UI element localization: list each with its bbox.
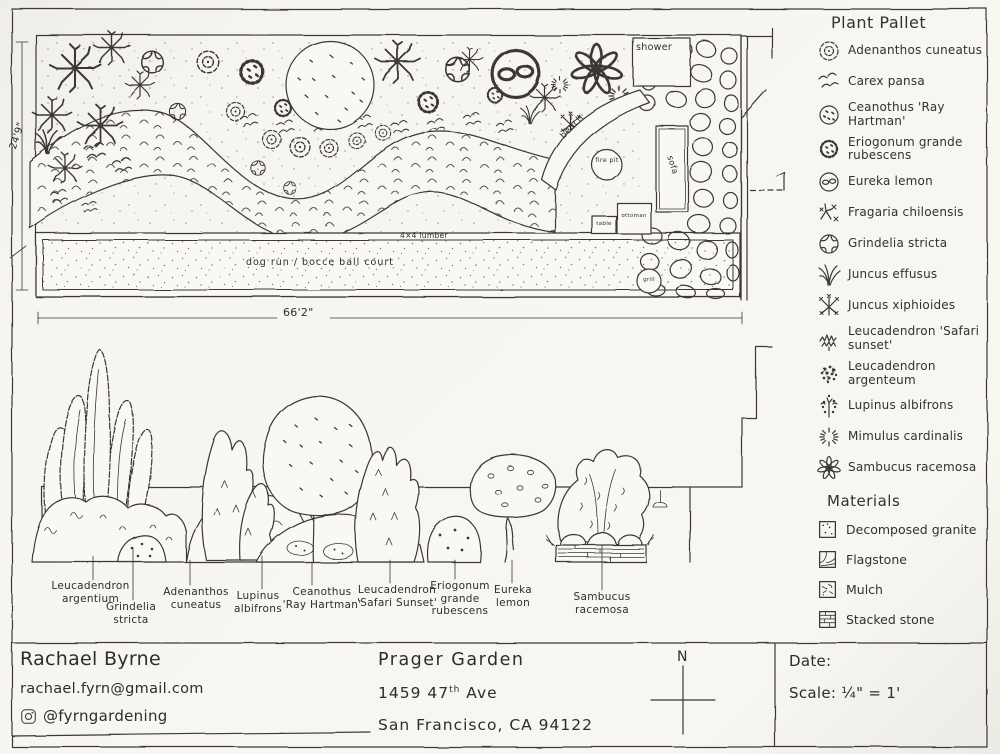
pinwheel-circle-icon bbox=[817, 232, 841, 256]
date-field: Date: bbox=[789, 652, 831, 670]
project-address: 1459 47th Ave bbox=[378, 684, 498, 703]
instagram-text: @fyrngardening bbox=[43, 707, 168, 725]
legend-item-label: Mimulus cardinalis bbox=[848, 430, 963, 444]
material-item: Decomposed granite bbox=[817, 516, 995, 542]
wavy-grass-icon bbox=[817, 70, 841, 94]
legend-item: Adenanthos cuneatus bbox=[817, 39, 995, 63]
label-fire-pit: fire pit bbox=[592, 157, 622, 165]
instagram-handle: @fyrngardening bbox=[20, 707, 168, 725]
dense-cluster-icon bbox=[817, 362, 841, 386]
grass-fan-icon bbox=[817, 263, 841, 287]
plan-view bbox=[10, 28, 784, 324]
legend-title: Plant Pallet bbox=[831, 13, 995, 32]
project-city: San Francisco, CA 94122 bbox=[378, 716, 593, 735]
legend-item-label: Eureka lemon bbox=[848, 175, 933, 189]
design-sheet: shower bench fire pit sofa table ottoman… bbox=[0, 0, 1000, 754]
designer-email: rachael.fyrn@gmail.com bbox=[20, 681, 204, 698]
mulch-square-icon bbox=[817, 579, 838, 600]
legend-item-label: Fragaria chiloensis bbox=[848, 206, 964, 220]
north-arrow bbox=[651, 666, 715, 734]
label-grill: grill bbox=[636, 277, 662, 284]
legend-item: Fragaria chiloensis bbox=[817, 201, 995, 225]
legend-item: Juncus effusus bbox=[817, 263, 995, 287]
fire-pit-outline bbox=[592, 150, 622, 180]
elevation-plants bbox=[32, 350, 654, 563]
legend-item-label: Ceanothus 'Ray Hartman' bbox=[848, 101, 995, 129]
plant-pallet-legend: Plant Pallet Adenanthos cuneatus Carex p… bbox=[817, 13, 995, 636]
material-label: Stacked stone bbox=[846, 612, 934, 627]
legend-item: Juncus xiphioides bbox=[817, 294, 995, 318]
legend-item-label: Carex pansa bbox=[848, 75, 925, 89]
material-label: Flagstone bbox=[846, 552, 907, 567]
scalloped-circle-icon bbox=[817, 39, 841, 63]
dotted-circle-icon bbox=[817, 103, 841, 127]
legend-item: Eureka lemon bbox=[817, 170, 995, 194]
legend-item-label: Leucadendron 'Safari sunset' bbox=[848, 325, 995, 353]
legend-item-label: Leucadendron argenteum bbox=[848, 360, 995, 388]
elevation-label: Eureka lemon bbox=[487, 584, 539, 609]
fruit-circle-icon bbox=[817, 170, 841, 194]
elevation-label: Eriogonum grande rubescens bbox=[426, 580, 494, 618]
legend-item: Lupinus albifrons bbox=[817, 394, 995, 418]
dimension-width: 66'2" bbox=[283, 306, 314, 319]
label-shower: shower bbox=[636, 42, 690, 53]
radiating-dashes-icon bbox=[817, 425, 841, 449]
north-label: N bbox=[677, 649, 688, 666]
flagstone-square-icon bbox=[817, 549, 838, 570]
starburst-x-icon bbox=[817, 294, 841, 318]
materials-title: Materials bbox=[827, 492, 995, 510]
elevation-label: Sambucus racemosa bbox=[562, 591, 642, 616]
material-item: Mulch bbox=[817, 576, 995, 602]
material-item: Stacked stone bbox=[817, 606, 995, 632]
legend-item: Leucadendron argenteum bbox=[817, 360, 995, 388]
designer-name: Rachael Byrne bbox=[20, 648, 161, 671]
stacked-lines-square-icon bbox=[817, 609, 838, 630]
runner-sprig-icon bbox=[817, 201, 841, 225]
address-street: Ave bbox=[460, 684, 497, 702]
label-ottoman: ottoman bbox=[617, 213, 651, 220]
elevation-label: Adenanthos cuneatus bbox=[158, 586, 234, 611]
legend-item: Grindelia stricta bbox=[817, 232, 995, 256]
dotted-square-icon bbox=[817, 519, 838, 540]
material-label: Decomposed granite bbox=[846, 522, 976, 537]
gate-arrow bbox=[750, 172, 784, 190]
legend-item: Carex pansa bbox=[817, 70, 995, 94]
boundary-wall bbox=[741, 28, 772, 300]
zigzag-scribble-icon bbox=[817, 327, 841, 351]
label-dog-run: dog run / bocce ball court bbox=[200, 257, 440, 268]
legend-item: Mimulus cardinalis bbox=[817, 425, 995, 449]
material-item: Flagstone bbox=[817, 546, 995, 572]
petal-flower-icon bbox=[817, 456, 841, 480]
legend-item-label: Juncus effusus bbox=[848, 268, 937, 282]
dotted-stem-icon bbox=[817, 394, 841, 418]
project-title: Prager Garden bbox=[378, 650, 524, 671]
address-ordinal: th bbox=[449, 685, 460, 695]
legend-item: Sambucus racemosa bbox=[817, 456, 995, 480]
address-number: 1459 47 bbox=[378, 684, 449, 702]
legend-item-label: Adenanthos cuneatus bbox=[848, 44, 982, 58]
legend-item-label: Lupinus albifrons bbox=[848, 399, 953, 413]
legend-item-label: Juncus xiphioides bbox=[848, 299, 955, 313]
material-label: Mulch bbox=[846, 582, 883, 597]
elevation-label: Grindelia stricta bbox=[100, 601, 162, 626]
label-table: table bbox=[592, 221, 616, 228]
legend-item: Leucadendron 'Safari sunset' bbox=[817, 325, 995, 353]
legend-item-label: Grindelia stricta bbox=[848, 237, 947, 251]
spiky-dotted-circle-icon bbox=[817, 137, 841, 161]
legend-item: Eriogonum grande rubescens bbox=[817, 136, 995, 164]
instagram-icon bbox=[20, 708, 37, 725]
scale-field: Scale: ¼" = 1' bbox=[789, 684, 901, 702]
legend-item-label: Sambucus racemosa bbox=[848, 461, 976, 475]
label-lumber: 4×4 lumber bbox=[400, 231, 448, 240]
elevation-view bbox=[30, 347, 772, 600]
legend-item-label: Eriogonum grande rubescens bbox=[848, 136, 995, 164]
legend-item: Ceanothus 'Ray Hartman' bbox=[817, 101, 995, 129]
